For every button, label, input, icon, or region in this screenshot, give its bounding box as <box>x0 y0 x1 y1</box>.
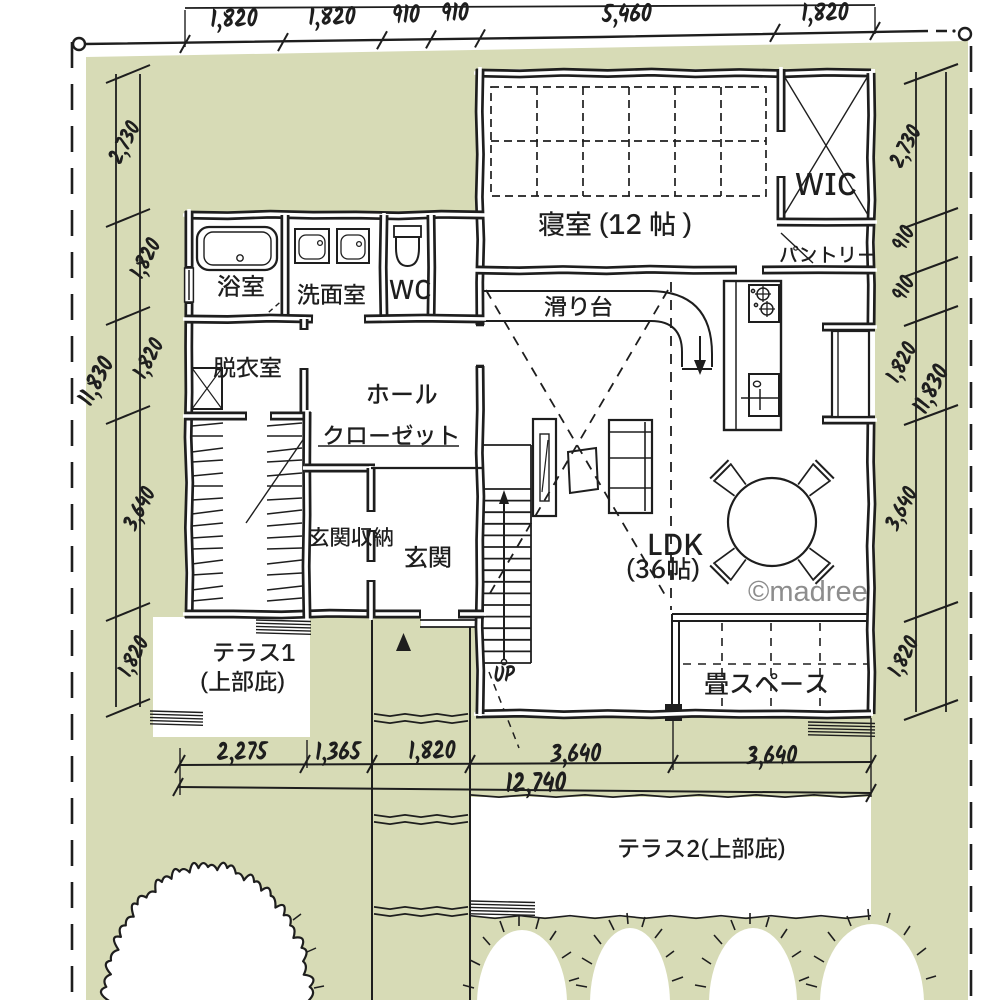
svg-text:©madree: ©madree <box>748 576 868 608</box>
